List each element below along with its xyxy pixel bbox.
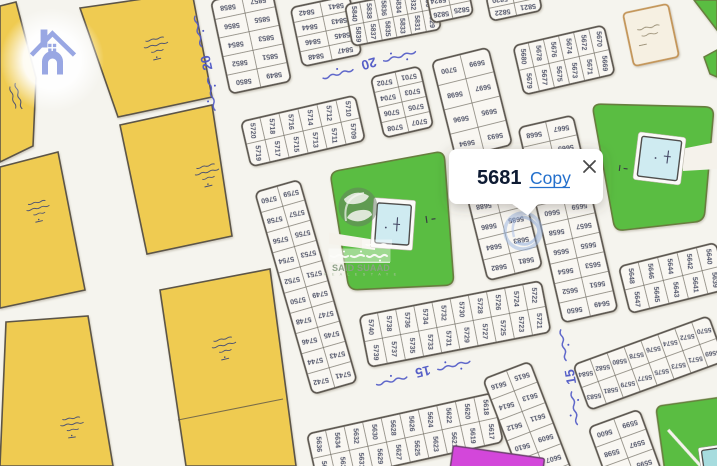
svg-text:SAID SUAAD: SAID SUAAD bbox=[332, 263, 390, 273]
svg-text:5681: 5681 bbox=[477, 167, 522, 189]
svg-text:Copy: Copy bbox=[530, 168, 571, 188]
svg-text:R E A L E S T A T E: R E A L E S T A T E bbox=[324, 273, 399, 277]
